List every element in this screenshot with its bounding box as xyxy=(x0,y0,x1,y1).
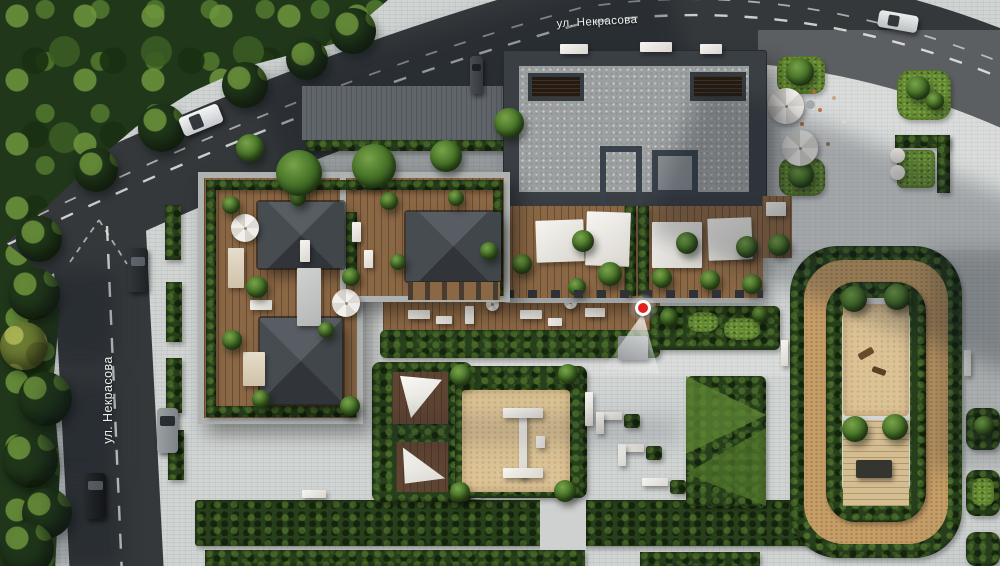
tree xyxy=(342,268,360,286)
roof-access xyxy=(640,42,672,52)
hedge xyxy=(206,190,216,410)
hedge xyxy=(166,358,182,413)
tree xyxy=(494,108,524,138)
tree xyxy=(340,396,360,416)
tree xyxy=(450,364,472,386)
cafe-chair xyxy=(818,108,822,112)
tree xyxy=(882,414,908,440)
tree-canopy xyxy=(74,148,118,192)
bench xyxy=(642,478,668,486)
hedge xyxy=(166,282,182,342)
roof-access xyxy=(700,44,722,54)
outdoor-sofa xyxy=(465,306,474,324)
outdoor-sofa xyxy=(520,310,542,319)
car-windshield xyxy=(472,64,481,72)
tree xyxy=(222,196,240,214)
tree-canopy xyxy=(16,216,62,262)
roof-umbrella xyxy=(332,289,360,317)
parking-bay xyxy=(302,86,517,140)
tree-shadow xyxy=(48,270,116,362)
tree xyxy=(652,268,672,288)
planter xyxy=(966,532,1000,566)
outdoor-sofa xyxy=(408,310,430,319)
deck-table xyxy=(856,460,892,478)
bench xyxy=(618,444,626,466)
tree xyxy=(252,390,270,408)
dining-set xyxy=(243,352,265,386)
car-windshield xyxy=(131,257,145,266)
hedge xyxy=(205,550,585,566)
outdoor-sofa xyxy=(250,300,272,310)
tree xyxy=(572,230,594,252)
car-windshield xyxy=(888,14,900,27)
tree xyxy=(480,242,498,260)
pedestrian xyxy=(842,120,846,124)
tree xyxy=(318,322,334,338)
building-shadow xyxy=(380,416,680,444)
hedge xyxy=(206,406,356,417)
tree xyxy=(380,192,398,210)
tree xyxy=(926,92,944,110)
tree-canopy xyxy=(138,104,186,152)
outdoor-sofa xyxy=(548,318,562,326)
outdoor-sofa xyxy=(300,240,310,262)
car xyxy=(128,248,148,292)
roof-access xyxy=(560,44,588,54)
location-marker-dot xyxy=(638,303,648,313)
tree xyxy=(752,306,768,322)
planter xyxy=(646,446,662,460)
tree-canopy xyxy=(330,8,376,54)
lounger xyxy=(364,250,373,268)
hedge xyxy=(346,212,357,272)
tree xyxy=(512,254,532,274)
elevator-shaft xyxy=(297,268,321,326)
bed-grass xyxy=(688,312,718,332)
street-hedge-band xyxy=(195,500,820,546)
outdoor-sofa xyxy=(585,308,605,317)
car-windshield xyxy=(160,416,175,426)
car xyxy=(157,408,178,453)
bench xyxy=(781,340,788,366)
hedge xyxy=(640,552,760,566)
tree xyxy=(660,308,678,326)
car xyxy=(85,473,106,519)
hedge xyxy=(306,140,516,151)
pergola xyxy=(408,282,500,300)
tree xyxy=(554,480,576,502)
outdoor-sofa xyxy=(436,316,452,324)
cafe-table xyxy=(806,100,815,109)
tree-canopy xyxy=(0,322,48,370)
hedge xyxy=(165,205,181,260)
roof-wood-inset xyxy=(528,73,584,101)
tree xyxy=(236,134,264,162)
car xyxy=(470,56,483,94)
bed-grass xyxy=(724,318,760,340)
building-shadow xyxy=(930,250,1000,470)
tree xyxy=(390,254,406,270)
tree xyxy=(448,190,464,206)
tree xyxy=(352,144,396,188)
tree xyxy=(842,416,868,442)
tree xyxy=(276,150,322,196)
tree xyxy=(786,58,814,86)
tree xyxy=(222,330,242,350)
lounger xyxy=(352,222,361,242)
planter-grass xyxy=(972,478,994,506)
terrace-divider-hedge xyxy=(638,206,649,296)
pedestrian xyxy=(832,96,836,100)
play-structure xyxy=(503,468,543,478)
planter xyxy=(670,480,686,494)
walkway-gap xyxy=(540,498,586,550)
street-label-left: ул. Некрасова xyxy=(101,356,115,444)
masterplan-aerial-view: ул. Некрасова ул. Некрасова xyxy=(0,0,1000,566)
car-windshield xyxy=(188,113,204,130)
tree xyxy=(450,482,470,502)
cafe-chair xyxy=(812,90,816,94)
dining-set xyxy=(228,248,244,288)
tree xyxy=(700,270,720,290)
bench xyxy=(302,490,326,498)
roof-umbrella xyxy=(231,214,259,242)
tree xyxy=(246,276,268,298)
tree xyxy=(598,262,622,286)
roof-hatch xyxy=(600,146,642,210)
tree xyxy=(430,140,462,172)
tree xyxy=(558,364,578,384)
car-windshield xyxy=(88,481,103,490)
